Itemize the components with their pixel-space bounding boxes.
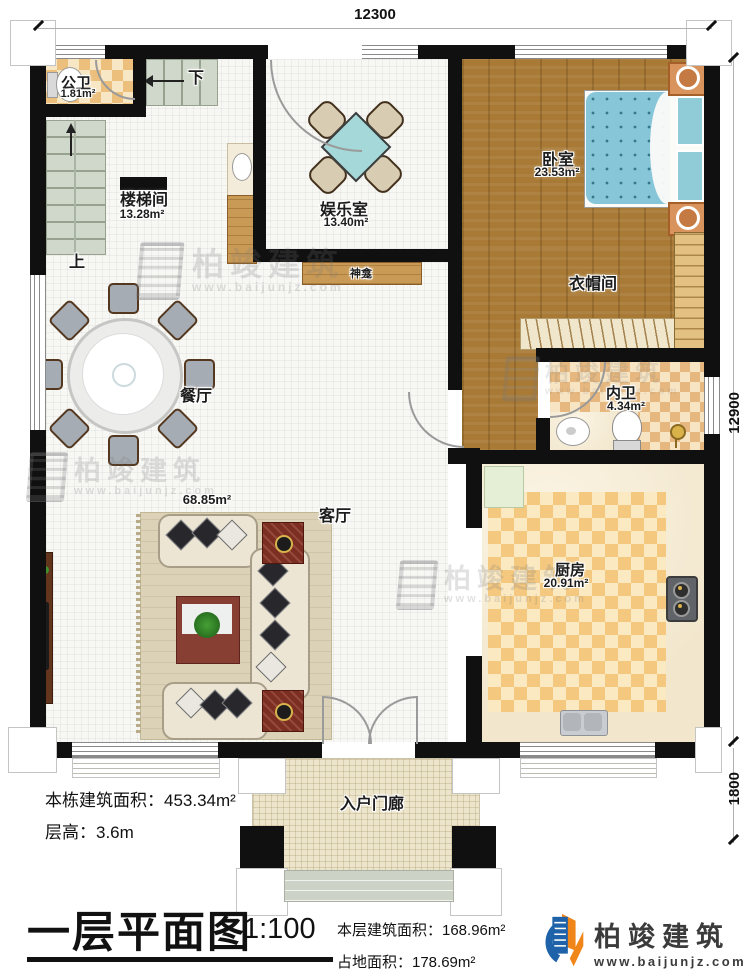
stove-burner [673,600,690,617]
wall [704,434,720,757]
wall [704,45,720,377]
watermark-logo-icon [26,452,68,502]
stove-burner [673,582,690,599]
building-area-text: 本栋建筑面积：453.34m² [45,786,236,811]
wall [418,45,515,59]
watermark-url: www.baijunjz.com [192,280,344,294]
shrine-label: 神龛 [350,265,372,281]
wall [415,742,520,758]
room-area-living: 68.85m² [183,492,231,507]
wall [30,45,46,275]
porch-pier-base [238,758,286,794]
column-base [450,868,502,916]
bed-pillow [676,96,704,146]
wall [448,59,462,390]
hall-basin-sink [232,153,252,181]
room-label-dining: 餐厅 [180,382,212,406]
window [515,45,667,59]
watermark-logo-icon [502,356,540,402]
stairs-down-arrow-line [152,80,184,82]
dining-chair [108,283,139,314]
watermark-logo-icon [396,560,438,610]
burner-knob [678,586,682,590]
table-plant [194,612,220,638]
brand-name: 柏竣建筑 [594,915,746,954]
room-label-living: 客厅 [319,502,351,526]
dim-tick [728,736,739,747]
stairs-up-arrow-line [70,132,72,156]
window [72,742,218,758]
wall [30,104,135,117]
lazy-susan [112,363,136,387]
porch-steps [284,870,454,902]
window [362,45,418,59]
window [520,742,655,758]
watermark: 柏竣建筑 www.baijunjz.com [138,242,344,300]
wall [466,656,482,742]
window [704,377,720,434]
stairs-up-arrow-icon [66,123,76,133]
room-area-public-bath: 1.81m² [61,88,96,100]
stairs-up-label: 上 [69,248,85,272]
watermark-text: 柏竣建筑 [74,458,217,485]
bed-pillow [676,150,704,202]
dim-line-top [38,28,712,29]
side-table-ornament [275,535,293,553]
window-sill [520,758,657,778]
plan-title: 一层平面图 [27,898,252,960]
wall [105,45,268,59]
floor-area-text: 本层建筑面积：168.96m² [337,919,505,940]
watermark-text: 柏竣建筑 [192,248,344,280]
room-area-bedroom: 23.53m² [535,165,580,179]
floor-plan-canvas: 12300 12900 1800 柏竣建筑 www.baijunjz.com 柏… [0,0,750,979]
wall [466,464,482,528]
porch-column [240,826,284,868]
wall [218,742,322,758]
room-area-kitchen: 20.91m² [544,576,589,590]
dim-top-width: 12300 [354,6,396,23]
stairs-down [146,59,218,106]
dim-tick [728,834,739,845]
wall [448,450,704,464]
kitchen-prep-board [484,466,524,508]
porch-floor [252,758,480,872]
brand-logo: 柏竣建筑 www.baijunjz.com [540,912,746,972]
kitchen-sink-basin [563,713,581,731]
porch-column [452,826,496,868]
stairs-up [46,120,106,255]
nightstand-lamp [676,206,700,230]
ensuite-toilet-bowl [612,410,642,444]
bed-blanket-fold [650,92,678,204]
watermark-url: www.baijunjz.com [444,593,587,605]
plan-scale: 1:100 [243,913,316,946]
room-label-porch: 入户门廊 [340,790,404,814]
footprint-area-text: 占地面积：178.69m² [337,951,475,972]
rug-fringe [136,514,141,736]
floor-height-text: 层高：3.6m [45,818,134,843]
kitchen-sink-basin [584,713,602,731]
watermark-logo-icon [135,242,184,300]
window-sill [72,758,220,778]
room-label-cloakroom: 衣帽间 [569,270,617,294]
room-area-gameroom: 13.40m² [324,215,369,229]
wall [253,59,266,262]
room-area-stairwell: 13.28m² [120,207,165,221]
wardrobe-hanger-rail [520,318,676,350]
window [30,275,46,430]
room-area-ensuite: 4.34m² [607,399,645,413]
stairs-rail [74,120,76,253]
floor-drain [670,424,686,440]
dim-porch-height: 1800 [726,772,743,805]
burner-knob [678,604,682,608]
corner-marker [8,727,57,773]
nightstand-lamp [676,66,700,90]
ensuite-sink-drain [566,427,576,435]
dim-right-height: 12900 [726,392,743,434]
brand-url: www.baijunjz.com [594,954,746,969]
brand-logo-icon [540,912,586,972]
watermark: 柏竣建筑 www.baijunjz.com [504,356,679,402]
stairs-down-label: 下 [188,64,204,88]
closet-shelves [674,232,706,350]
wall [536,418,550,452]
side-table-ornament [275,703,293,721]
title-underline [27,957,333,962]
porch-pier-base [452,758,500,794]
corner-marker [695,727,722,773]
